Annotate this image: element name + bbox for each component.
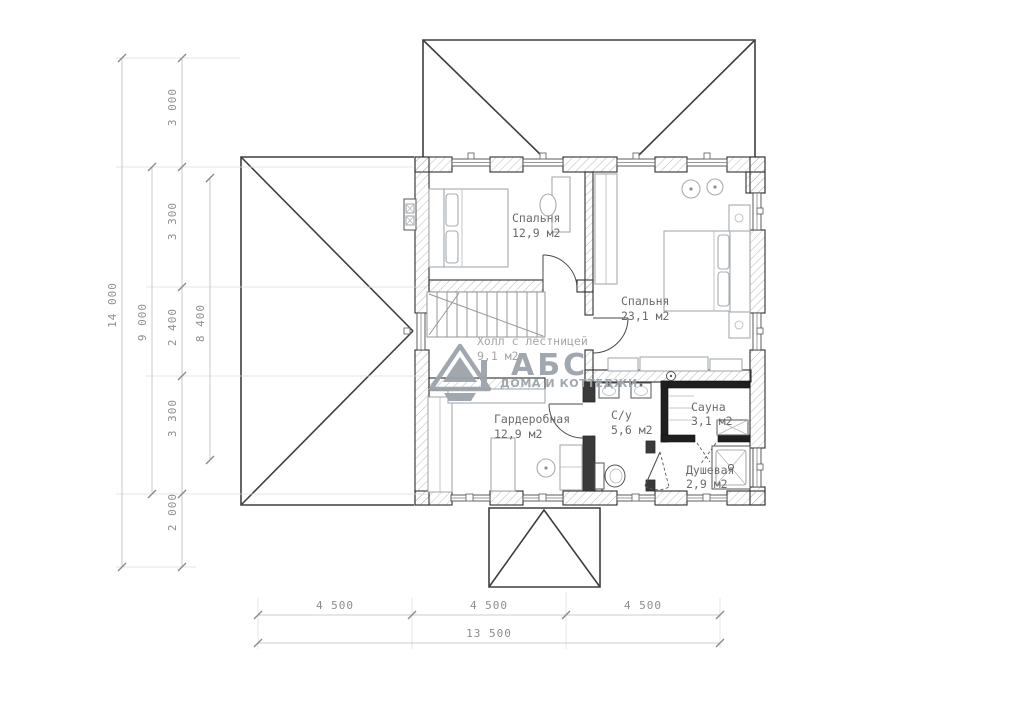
floor-plan-drawing: 3 000 3 300 2 400 3 300 2 000 14 000 9 0…: [0, 0, 1024, 724]
roof-left: [241, 157, 414, 505]
wardrobe-cabinet: [560, 445, 582, 490]
room-label-shower-name: Душевая: [686, 463, 734, 477]
door-bedroom-2: [593, 318, 628, 353]
room-label-bedroom-2-area: 23,1 м2: [621, 309, 669, 323]
dim-left-2400: 2 400: [166, 308, 179, 346]
toilet: [595, 463, 625, 489]
dim-left-2000: 2 000: [166, 493, 179, 531]
closet-bedroom-2: [595, 174, 617, 284]
dim-left-3300a: 3 300: [166, 202, 179, 240]
dim-left-8400: 8 400: [194, 304, 207, 342]
staircase: [427, 292, 545, 337]
room-label-sauna-area: 3,1 м2: [691, 414, 733, 428]
roof-porch: [489, 508, 600, 587]
room-label-wc-area: 5,6 м2: [611, 423, 653, 437]
bed-1: [429, 189, 508, 267]
nightstand-bottom: [729, 312, 750, 338]
room-label-wc-name: С/у: [611, 408, 632, 422]
dim-left-9000: 9 000: [136, 303, 149, 341]
dim-left-3300b: 3 300: [166, 399, 179, 437]
dim-left-3000: 3 000: [166, 88, 179, 126]
bed-2: [664, 228, 750, 312]
floor-plan-canvas: 3 000 3 300 2 400 3 300 2 000 14 000 9 0…: [0, 0, 1024, 724]
brand-logo-tagline: ДОМА И КОТТЕДЖИ: [500, 377, 638, 390]
roof-top: [423, 40, 755, 157]
dim-left-14000: 14 000: [106, 282, 119, 328]
room-label-wardrobe-name: Гардеробная: [494, 412, 570, 426]
dim-bottom-4500c: 4 500: [624, 599, 662, 612]
dimension-labels-bottom: 4 500 4 500 4 500 13 500: [316, 599, 662, 640]
room-label-sauna-name: Сауна: [691, 400, 726, 414]
room-label-bedroom-1-area: 12,9 м2: [512, 226, 560, 240]
room-label-bedroom-1-name: Спальня: [512, 211, 560, 225]
nightstand-top: [729, 205, 750, 231]
dim-bottom-13500: 13 500: [466, 627, 512, 640]
low-cabinets: [608, 357, 742, 371]
ceiling-light: [682, 179, 723, 198]
room-label-hall-name: Холл с лестницей: [477, 334, 588, 348]
room-label-shower-area: 2,9 м2: [686, 477, 728, 491]
room-label-bedroom-2-name: Спальня: [621, 294, 669, 308]
dimension-labels-left: 3 000 3 300 2 400 3 300 2 000 14 000 9 0…: [106, 88, 207, 531]
wardrobe-light: [537, 459, 555, 477]
dim-bottom-4500a: 4 500: [316, 599, 354, 612]
door-bedroom-1: [543, 255, 577, 289]
wall-vent-unit: [404, 199, 416, 230]
room-label-wardrobe-area: 12,9 м2: [494, 427, 542, 441]
dim-bottom-4500b: 4 500: [470, 599, 508, 612]
wall-fixture: [667, 372, 676, 381]
dimension-lines-left: [116, 54, 428, 571]
